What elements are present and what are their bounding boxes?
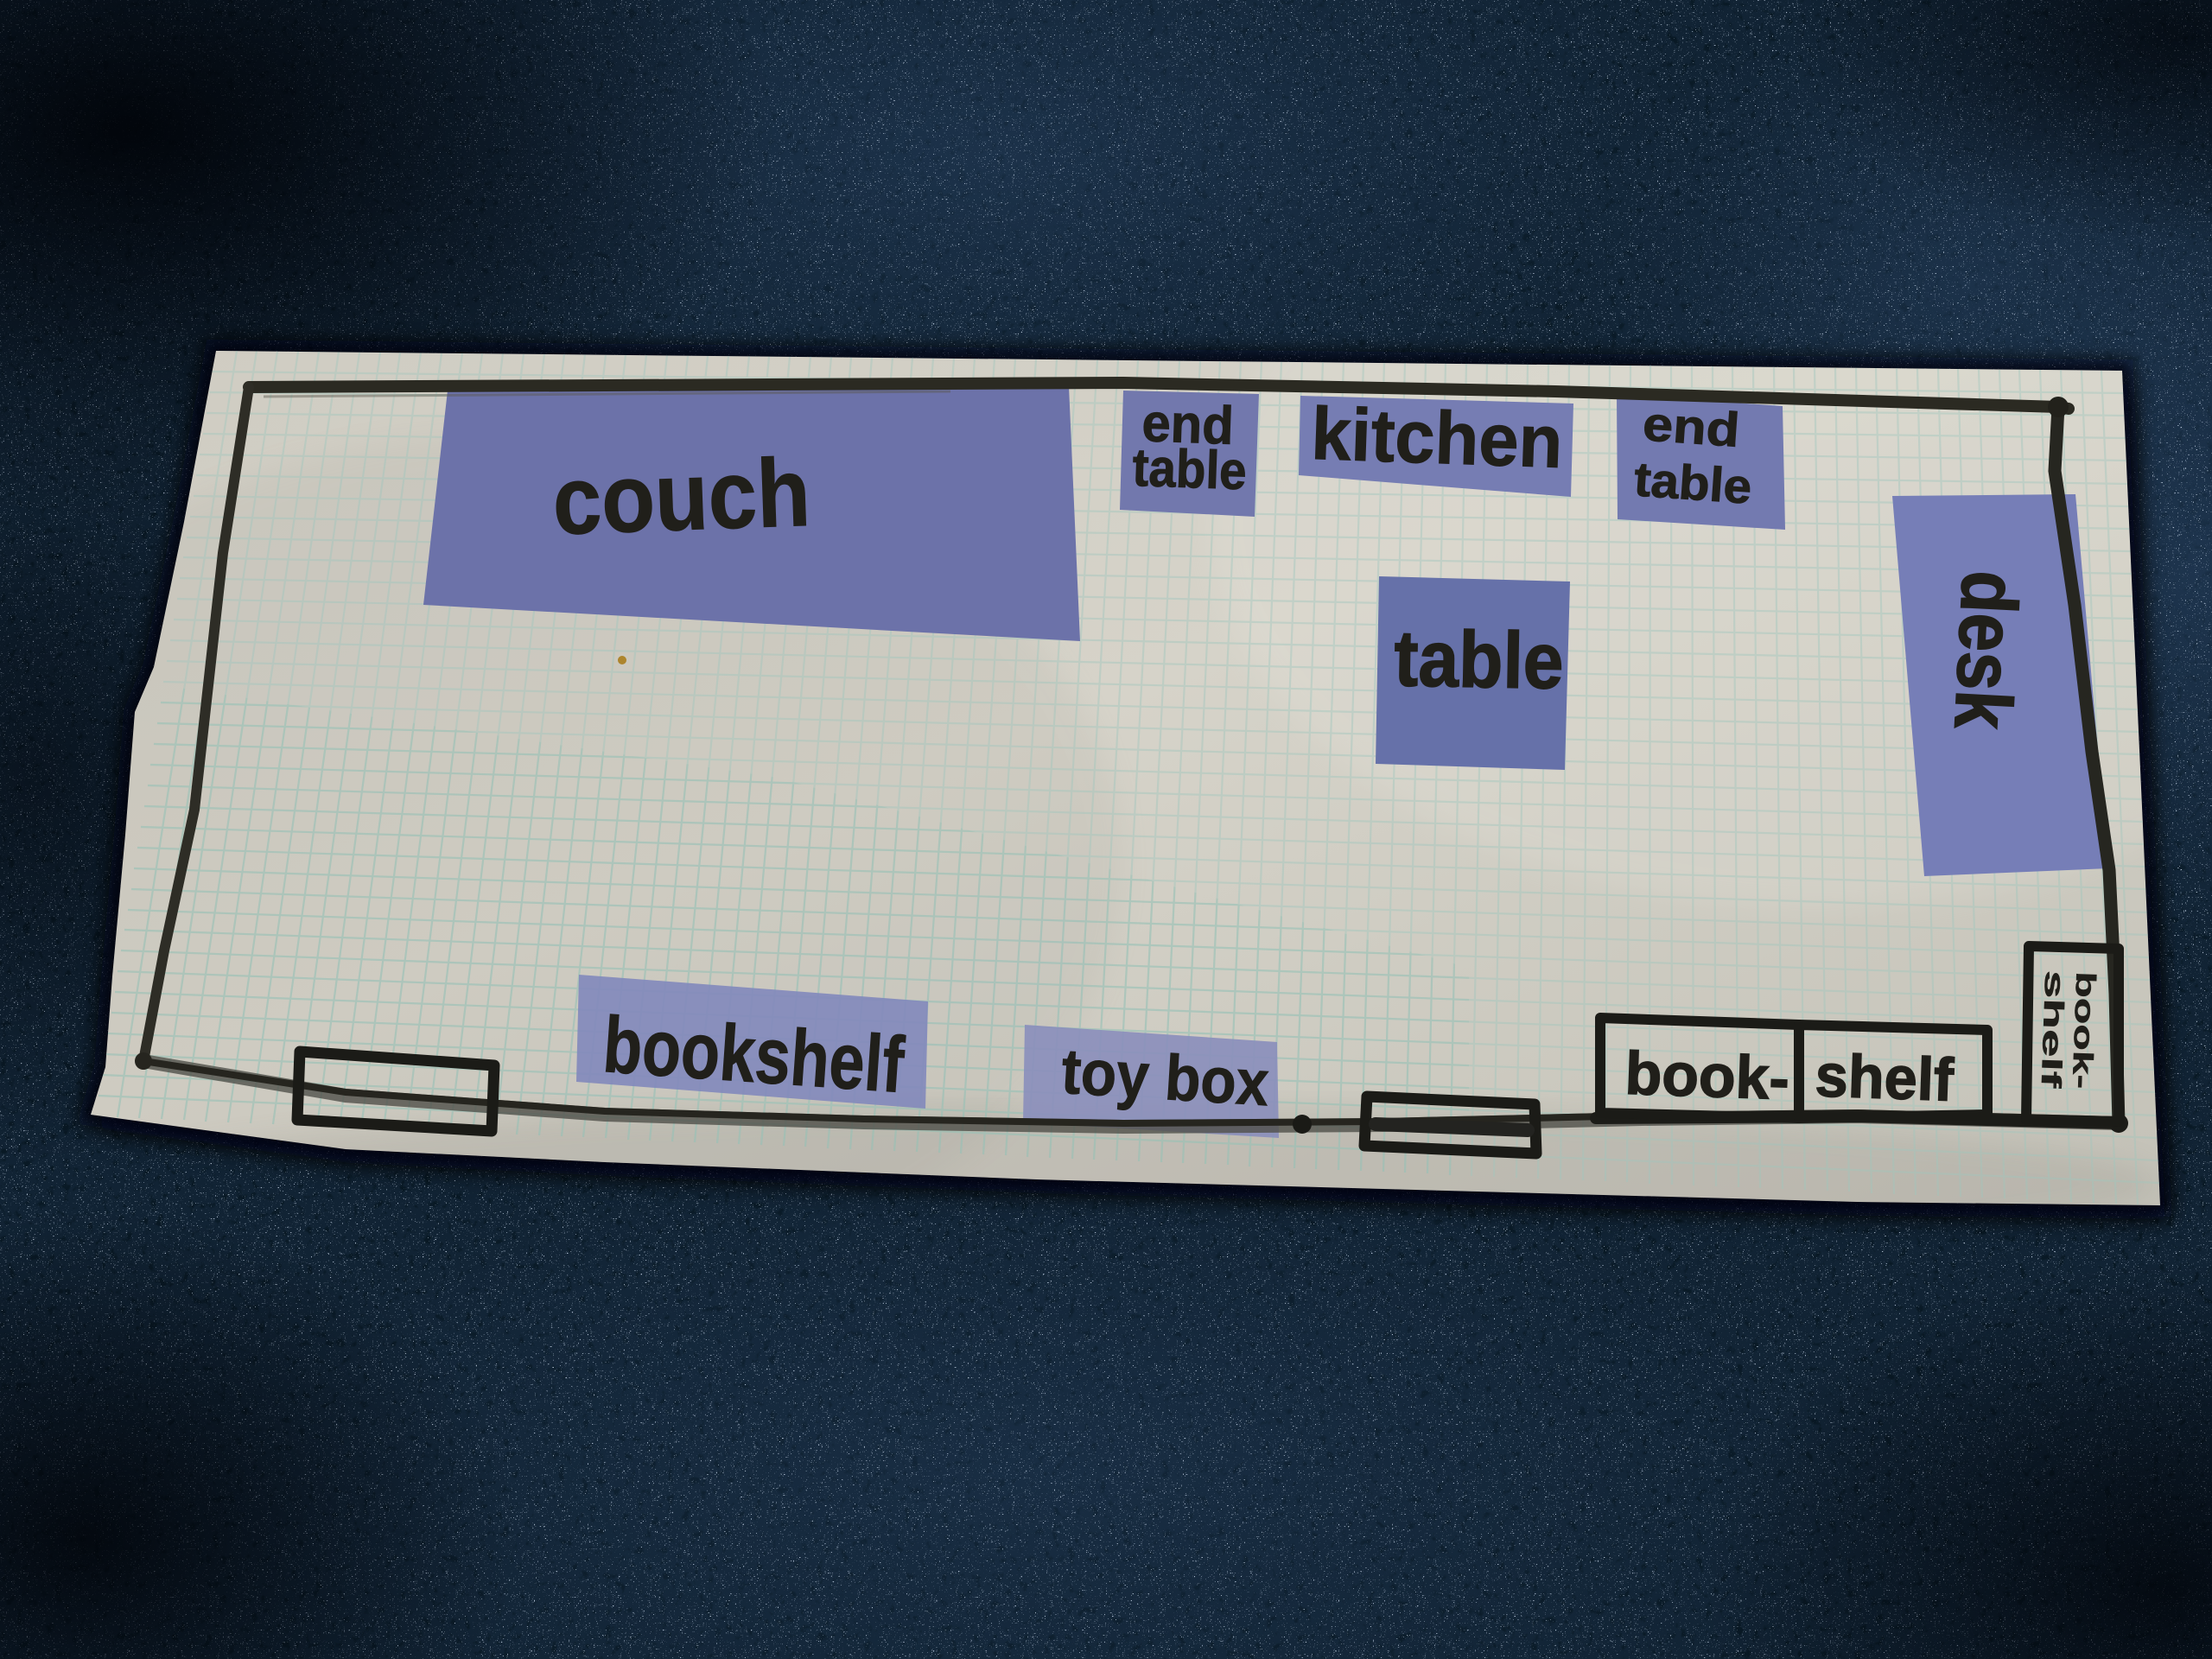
svg-text:book-: book- <box>2067 971 2102 1090</box>
svg-text:end: end <box>1641 396 1741 457</box>
svg-text:couch: couch <box>551 438 812 555</box>
svg-text:kitchen: kitchen <box>1310 392 1564 484</box>
svg-text:book-: book- <box>1624 1039 1791 1113</box>
svg-text:table: table <box>1632 451 1753 513</box>
svg-text:table: table <box>1132 438 1248 502</box>
svg-text:shelf: shelf <box>1815 1041 1955 1114</box>
svg-text:desk: desk <box>1937 569 2033 732</box>
svg-text:table: table <box>1394 614 1565 705</box>
svg-text:shelf: shelf <box>2036 970 2071 1090</box>
svg-text:toy box: toy box <box>1059 1035 1271 1119</box>
